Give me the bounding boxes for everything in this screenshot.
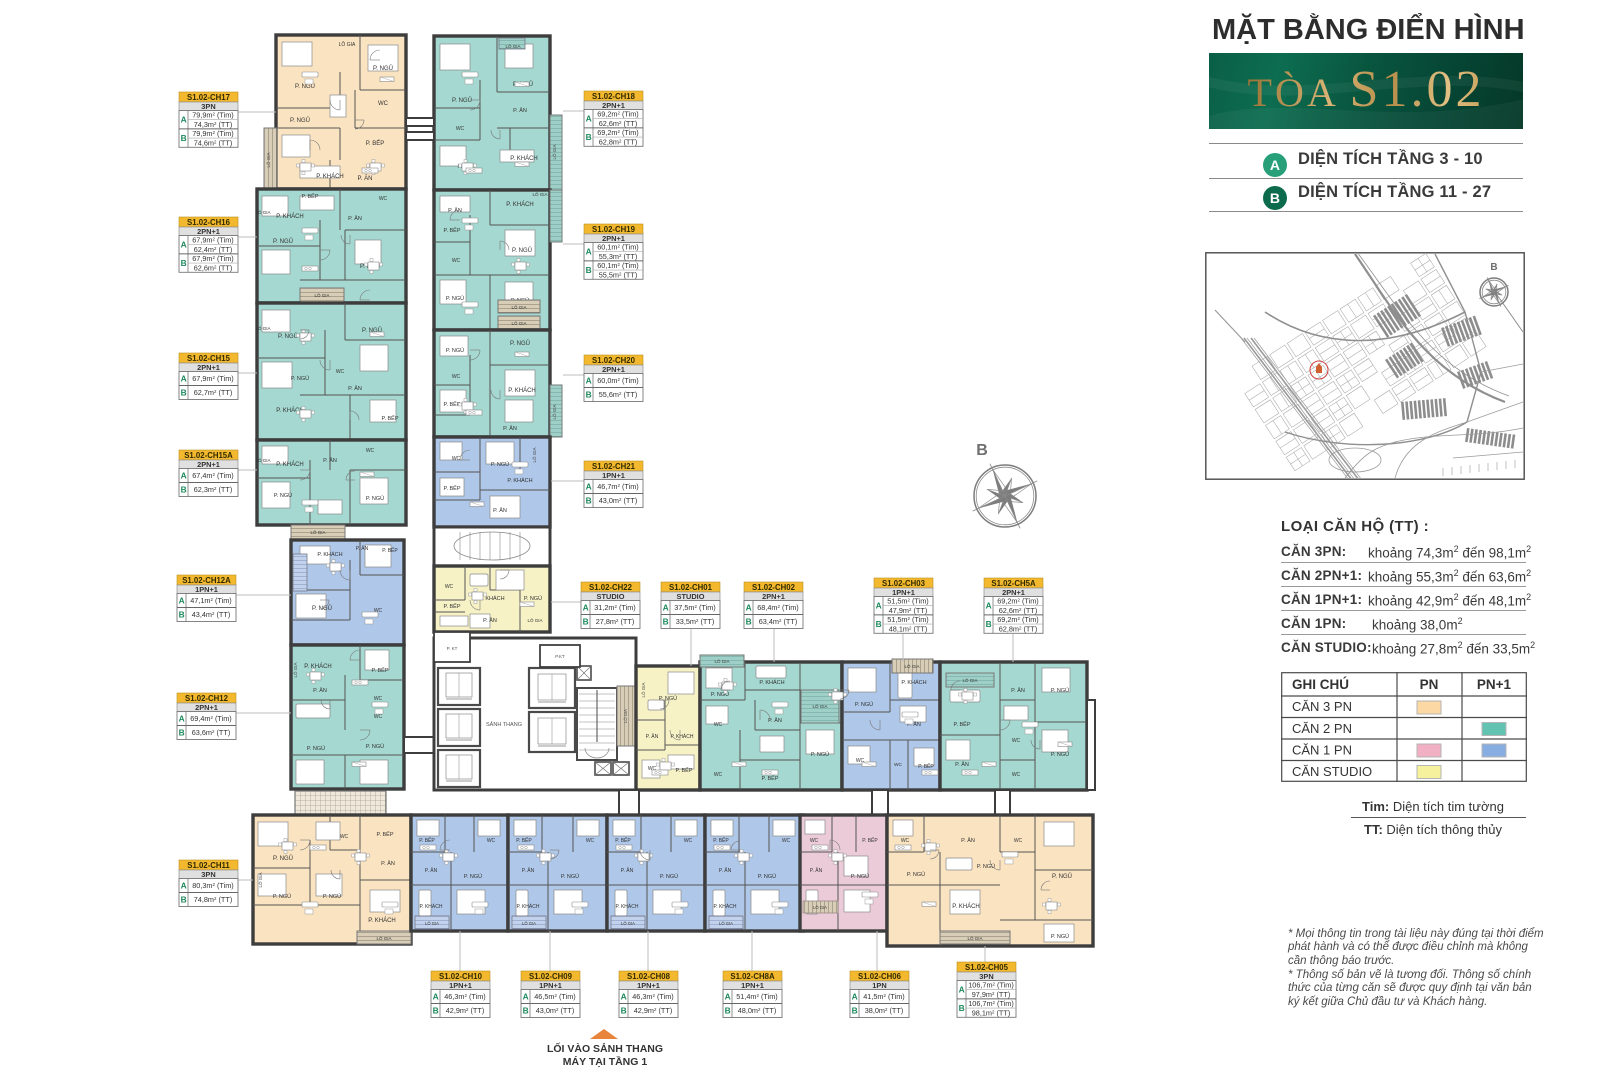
- svg-text:A: A: [181, 471, 187, 481]
- svg-text:P. NGỦ: P. NGỦ: [561, 873, 579, 880]
- svg-text:S1.02-CH22: S1.02-CH22: [589, 583, 633, 592]
- svg-text:P. ĂN: P. ĂN: [719, 867, 732, 874]
- svg-text:P. ĂN: P. ĂN: [358, 175, 373, 182]
- svg-text:62,6m2 (TT): 62,6m2 (TT): [999, 606, 1038, 615]
- svg-text:62,8m2 (TT): 62,8m2 (TT): [999, 624, 1038, 633]
- svg-text:S1.02-CH06: S1.02-CH06: [858, 972, 902, 981]
- svg-text:P. NGỦ: P. NGỦ: [290, 117, 310, 124]
- svg-text:P. KHÁCH: P. KHÁCH: [317, 551, 342, 558]
- svg-text:P. BẾP: P. BẾP: [953, 721, 970, 728]
- svg-text:P. BẾP: P. BẾP: [615, 837, 631, 844]
- svg-text:74,8m2 (TT): 74,8m2 (TT): [194, 895, 233, 904]
- svg-text:97,9m2 (TT): 97,9m2 (TT): [972, 990, 1011, 999]
- svg-text:LÔ GIA: LÔ GIA: [714, 658, 729, 664]
- svg-text:S1.02-CH10: S1.02-CH10: [439, 972, 483, 981]
- svg-text:P. NGỦ: P. NGỦ: [307, 745, 325, 752]
- svg-text:P. NGỦ: P. NGỦ: [446, 295, 464, 302]
- svg-text:LÔ GIA: LÔ GIA: [310, 529, 325, 535]
- svg-text:43,0m2 (TT): 43,0m2 (TT): [599, 496, 638, 505]
- svg-text:B: B: [181, 895, 187, 905]
- svg-text:WC: WC: [782, 838, 791, 844]
- svg-text:P. ĂN: P. ĂN: [961, 837, 975, 844]
- svg-text:S1.02-CH15A: S1.02-CH15A: [184, 451, 233, 460]
- svg-text:P. BẾP: P. BẾP: [761, 775, 778, 782]
- svg-text:1PN+1: 1PN+1: [637, 981, 660, 990]
- svg-text:P. BẾP: P. BẾP: [381, 415, 398, 422]
- svg-text:P. NGỦ: P. NGỦ: [373, 65, 393, 72]
- svg-text:P. KHÁCH: P. KHÁCH: [510, 155, 538, 162]
- svg-text:LÔ GIA: LÔ GIA: [719, 921, 733, 926]
- svg-text:P. ĂN: P. ĂN: [356, 545, 369, 552]
- svg-text:B: B: [852, 1006, 858, 1016]
- svg-text:A: A: [179, 714, 185, 724]
- svg-text:A: A: [181, 115, 187, 125]
- svg-text:P. ĂN: P. ĂN: [503, 425, 517, 432]
- svg-text:P. ĂN: P. ĂN: [483, 617, 497, 624]
- svg-text:P. NGỦ: P. NGỦ: [659, 695, 677, 702]
- svg-text:P. NGỦ: P. NGỦ: [273, 238, 293, 245]
- svg-text:B: B: [181, 133, 187, 143]
- svg-text:43,4m2 (TT): 43,4m2 (TT): [192, 610, 231, 619]
- svg-text:P. BẾP: P. BẾP: [443, 401, 460, 408]
- svg-text:2PN+1: 2PN+1: [195, 703, 218, 712]
- svg-text:P. BẾP: P. BẾP: [366, 140, 385, 147]
- svg-text:S1.02-CH02: S1.02-CH02: [752, 583, 796, 592]
- svg-text:WC: WC: [714, 722, 723, 728]
- svg-text:A: A: [179, 596, 185, 606]
- svg-text:B: B: [181, 485, 187, 495]
- svg-text:LÔ GIA: LÔ GIA: [265, 152, 271, 167]
- svg-text:WC: WC: [586, 838, 595, 844]
- svg-text:PN: PN: [1420, 677, 1439, 692]
- svg-text:A: A: [586, 114, 592, 124]
- svg-text:62,6m2 (TT): 62,6m2 (TT): [194, 263, 233, 272]
- svg-text:LÔ GIA: LÔ GIA: [967, 935, 982, 941]
- svg-text:P. NGỦ: P. NGỦ: [855, 701, 873, 708]
- svg-text:WC: WC: [452, 456, 461, 462]
- svg-text:P. KHÁCH: P. KHÁCH: [714, 903, 737, 910]
- svg-text:P. ĂN: P. ĂN: [513, 107, 527, 114]
- svg-text:P. ĂN: P. ĂN: [1011, 687, 1025, 694]
- svg-text:3PN: 3PN: [979, 972, 993, 981]
- svg-text:P. KHÁCH: P. KHÁCH: [952, 903, 980, 910]
- svg-text:P. NGỦ: P. NGỦ: [1051, 687, 1069, 694]
- svg-text:WC: WC: [1012, 772, 1021, 778]
- svg-text:P. NGỦ: P. NGỦ: [758, 873, 776, 880]
- svg-text:P. NGỦ: P. NGỦ: [452, 97, 472, 104]
- svg-text:P. NGỦ: P. NGỦ: [446, 347, 464, 354]
- svg-text:B: B: [959, 1003, 965, 1013]
- svg-text:LÔ GIA: LÔ GIA: [314, 292, 329, 298]
- svg-text:WC: WC: [901, 838, 910, 844]
- svg-text:P. BẾP: P. BẾP: [516, 837, 532, 844]
- svg-text:P. ĂN: P. ĂN: [381, 860, 395, 867]
- svg-text:B: B: [725, 1006, 731, 1016]
- svg-text:47,9m2 (TT): 47,9m2 (TT): [889, 606, 928, 615]
- svg-text:A: A: [746, 603, 752, 613]
- svg-text:74,6m2 (TT): 74,6m2 (TT): [194, 138, 233, 147]
- svg-text:P. ĂN: P. ĂN: [448, 207, 462, 214]
- svg-text:B: B: [586, 496, 592, 506]
- svg-text:LÔ GIA: LÔ GIA: [640, 682, 646, 697]
- svg-text:P. ĂN: P. ĂN: [493, 507, 507, 514]
- svg-text:P. NGỦ: P. NGỦ: [366, 743, 384, 750]
- svg-text:S1.02-CH18: S1.02-CH18: [592, 92, 636, 101]
- svg-text:LÔ GIA: LÔ GIA: [904, 663, 919, 669]
- svg-text:LÔ GIA: LÔ GIA: [511, 320, 526, 326]
- svg-text:STUDIO: STUDIO: [597, 592, 625, 601]
- svg-text:P. NGỦ: P. NGỦ: [278, 333, 298, 340]
- svg-text:WC: WC: [1012, 738, 1021, 744]
- svg-text:3PN: 3PN: [201, 102, 215, 111]
- svg-text:STUDIO: STUDIO: [677, 592, 705, 601]
- svg-text:P. KHÁCH: P. KHÁCH: [507, 477, 532, 484]
- svg-text:LÔ GIA: LÔ GIA: [551, 144, 557, 159]
- svg-text:A: A: [583, 603, 589, 613]
- svg-text:P. KHÁCH: P. KHÁCH: [508, 387, 536, 394]
- svg-text:A: A: [876, 601, 882, 611]
- svg-text:WC: WC: [336, 369, 345, 375]
- svg-text:B: B: [179, 728, 185, 738]
- svg-text:1PN: 1PN: [872, 981, 886, 990]
- svg-text:WC: WC: [445, 584, 454, 590]
- svg-text:A: A: [181, 240, 187, 250]
- svg-text:P. KHÁCH: P. KHÁCH: [759, 679, 784, 686]
- svg-text:P.KT: P.KT: [555, 654, 565, 659]
- svg-text:2PN+1: 2PN+1: [197, 460, 220, 469]
- svg-text:LÔ GIA: LÔ GIA: [255, 209, 270, 215]
- svg-text:62,3m2 (TT): 62,3m2 (TT): [194, 485, 233, 494]
- svg-text:P. NGỦ: P. NGỦ: [366, 495, 384, 502]
- svg-text:WC: WC: [684, 838, 693, 844]
- svg-text:A: A: [986, 601, 992, 611]
- svg-text:1PN+1: 1PN+1: [741, 981, 764, 990]
- svg-text:P. NGỦ: P. NGỦ: [273, 855, 293, 862]
- svg-text:A: A: [586, 376, 592, 386]
- svg-text:A: A: [181, 881, 187, 891]
- svg-text:B: B: [1490, 262, 1497, 273]
- svg-text:LÔ GIA: LÔ GIA: [376, 935, 391, 941]
- svg-text:LÔ GIA: LÔ GIA: [425, 921, 439, 926]
- svg-text:S1.02-CH5A: S1.02-CH5A: [991, 579, 1036, 588]
- svg-text:P. BẾP: P. BẾP: [918, 763, 934, 770]
- svg-text:P. NGỦ: P. NGỦ: [1051, 933, 1069, 940]
- svg-text:WC: WC: [340, 834, 349, 840]
- svg-text:106,7m2 (Tim): 106,7m2 (Tim): [968, 981, 1014, 990]
- svg-text:P. NGỦ: P. NGỦ: [811, 751, 829, 758]
- svg-text:P. BẾP: P. BẾP: [443, 603, 460, 610]
- svg-text:74,3m2 (TT): 74,3m2 (TT): [194, 120, 233, 129]
- svg-text:P. NGỦ: P. NGỦ: [464, 873, 482, 880]
- svg-text:2PN+1: 2PN+1: [197, 227, 220, 236]
- svg-text:42,9m2 (TT): 42,9m2 (TT): [634, 1006, 673, 1015]
- svg-text:P. NGỦ: P. NGỦ: [660, 873, 678, 880]
- svg-text:P. KHÁCH: P. KHÁCH: [616, 903, 639, 910]
- svg-text:S1.02-CH09: S1.02-CH09: [529, 972, 573, 981]
- svg-text:P. BẾP: P. BẾP: [301, 193, 318, 200]
- svg-text:S1.02-CH12A: S1.02-CH12A: [182, 576, 231, 585]
- svg-text:P. KHÁCH: P. KHÁCH: [901, 679, 926, 686]
- svg-text:S1.02-CH19: S1.02-CH19: [592, 225, 636, 234]
- svg-text:B: B: [179, 610, 185, 620]
- svg-text:P. BẾP: P. BẾP: [371, 667, 388, 674]
- svg-text:A: A: [852, 992, 858, 1002]
- svg-text:2PN+1: 2PN+1: [602, 101, 625, 110]
- svg-text:S1.02-CH16: S1.02-CH16: [187, 218, 231, 227]
- svg-text:PN+1: PN+1: [1477, 677, 1512, 692]
- svg-text:2PN+1: 2PN+1: [762, 592, 785, 601]
- svg-text:LÔ GIA: LÔ GIA: [292, 662, 298, 677]
- svg-text:LÔ GIA: LÔ GIA: [623, 709, 628, 723]
- svg-text:CĂN 1 PN: CĂN 1 PN: [1292, 743, 1352, 758]
- svg-text:P. ĂN: P. ĂN: [348, 215, 362, 222]
- svg-text:55,5m2 (TT): 55,5m2 (TT): [599, 270, 638, 279]
- svg-text:P. BẾP: P. BẾP: [443, 485, 460, 492]
- svg-text:LÔ GIA: LÔ GIA: [255, 457, 270, 463]
- svg-text:P. BẾP: P. BẾP: [713, 837, 729, 844]
- svg-text:S1.02-CH20: S1.02-CH20: [592, 356, 636, 365]
- svg-text:WC: WC: [810, 838, 819, 844]
- svg-text:A: A: [621, 992, 627, 1002]
- svg-text:S1.02-CH01: S1.02-CH01: [669, 583, 713, 592]
- svg-text:B: B: [523, 1006, 529, 1016]
- svg-text:P. ĂN: P. ĂN: [768, 717, 782, 724]
- svg-text:LÔ GIA: LÔ GIA: [551, 404, 557, 419]
- svg-text:P. NGỦ: P. NGỦ: [273, 893, 291, 900]
- svg-text:P. ĂN: P. ĂN: [810, 867, 823, 874]
- svg-text:LÔ GIA: LÔ GIA: [812, 703, 827, 709]
- svg-text:WC: WC: [452, 258, 461, 264]
- svg-text:P. KHÁCH: P. KHÁCH: [276, 213, 304, 220]
- svg-text:48,0m2 (TT): 48,0m2 (TT): [738, 1006, 777, 1015]
- svg-text:P. ĂN: P. ĂN: [955, 761, 969, 768]
- svg-text:CĂN 3 PN: CĂN 3 PN: [1292, 699, 1352, 714]
- svg-text:WC: WC: [366, 448, 375, 454]
- svg-text:1PN+1: 1PN+1: [892, 588, 915, 597]
- svg-text:P. ĂN: P. ĂN: [348, 385, 362, 392]
- svg-text:2PN+1: 2PN+1: [602, 234, 625, 243]
- svg-text:P. NGỦ: P. NGỦ: [291, 375, 309, 382]
- svg-text:1PN+1: 1PN+1: [449, 981, 472, 990]
- svg-text:P. BẾP: P. BẾP: [675, 767, 692, 774]
- svg-text:B: B: [586, 132, 592, 142]
- svg-text:WC: WC: [452, 374, 461, 380]
- svg-text:LÔ GIA: LÔ GIA: [255, 325, 270, 331]
- svg-text:B: B: [433, 1006, 439, 1016]
- svg-text:62,7m2 (TT): 62,7m2 (TT): [194, 388, 233, 397]
- svg-text:55,6m2 (TT): 55,6m2 (TT): [599, 390, 638, 399]
- svg-text:2PN+1: 2PN+1: [197, 363, 220, 372]
- svg-text:WC: WC: [374, 696, 383, 702]
- svg-text:42,9m2 (TT): 42,9m2 (TT): [446, 1006, 485, 1015]
- svg-text:P. KHÁCH: P. KHÁCH: [316, 173, 344, 180]
- svg-text:P. NGỦ: P. NGỦ: [851, 873, 869, 880]
- svg-text:P. NGỦ: P. NGỦ: [1051, 751, 1069, 758]
- svg-text:S1.02-CH17: S1.02-CH17: [187, 93, 230, 102]
- svg-text:P. BẾP: P. BẾP: [443, 227, 460, 234]
- svg-text:S1.02-CH11: S1.02-CH11: [187, 861, 230, 870]
- svg-text:B: B: [976, 442, 988, 459]
- svg-text:LÔ GIA: LÔ GIA: [505, 43, 520, 49]
- svg-text:B: B: [986, 619, 992, 629]
- svg-text:WC: WC: [379, 196, 388, 202]
- svg-text:LÔ GIA: LÔ GIA: [339, 41, 356, 48]
- svg-text:27,8m2 (TT): 27,8m2 (TT): [596, 617, 635, 626]
- svg-text:S1.02-CH05: S1.02-CH05: [965, 963, 1009, 972]
- svg-text:63,6m2 (TT): 63,6m2 (TT): [192, 728, 231, 737]
- svg-text:SẢNH THANG: SẢNH THANG: [486, 721, 522, 728]
- svg-text:B: B: [181, 388, 187, 398]
- svg-text:P. ĂN: P. ĂN: [646, 733, 659, 740]
- svg-text:LÔ GIA: LÔ GIA: [527, 617, 542, 623]
- svg-text:LÔ GIA: LÔ GIA: [522, 921, 536, 926]
- svg-text:B: B: [663, 617, 669, 627]
- svg-text:P. BẾP: P. BẾP: [862, 837, 878, 844]
- svg-text:GHI CHÚ: GHI CHÚ: [1292, 677, 1349, 692]
- svg-text:P. NGỦ: P. NGỦ: [524, 595, 542, 602]
- svg-text:P. BẾP: P. BẾP: [382, 547, 398, 554]
- svg-text:P. NGỦ: P. NGỦ: [510, 340, 530, 347]
- svg-text:48,1m2 (TT): 48,1m2 (TT): [889, 624, 928, 633]
- svg-text:62,8m2 (TT): 62,8m2 (TT): [599, 137, 638, 146]
- svg-text:CĂN 2 PN: CĂN 2 PN: [1292, 721, 1352, 736]
- svg-text:106,7m2 (Tim): 106,7m2 (Tim): [968, 999, 1014, 1008]
- svg-text:33,5m2 (TT): 33,5m2 (TT): [676, 617, 715, 626]
- svg-text:P. ĂN: P. ĂN: [323, 457, 337, 464]
- svg-text:P. ĂN: P. ĂN: [522, 867, 535, 874]
- svg-text:LÔ GIA: LÔ GIA: [532, 191, 547, 197]
- svg-text:P. NGỦ: P. NGỦ: [1052, 873, 1072, 880]
- svg-text:WC: WC: [378, 101, 389, 107]
- svg-text:S1.02-CH8A: S1.02-CH8A: [730, 972, 775, 981]
- svg-text:LÔ GIA: LÔ GIA: [621, 921, 635, 926]
- svg-text:P. NGỦ: P. NGỦ: [907, 871, 925, 878]
- svg-text:P. KHÁCH: P. KHÁCH: [304, 663, 332, 670]
- svg-text:1PN+1: 1PN+1: [195, 585, 218, 594]
- svg-text:P. KHÁCH: P. KHÁCH: [420, 903, 443, 910]
- svg-text:S1.02-CH21: S1.02-CH21: [592, 462, 636, 471]
- svg-text:38,0m2 (TT): 38,0m2 (TT): [865, 1006, 904, 1015]
- svg-text:LÔ GIA: LÔ GIA: [813, 905, 827, 910]
- svg-text:98,1m2 (TT): 98,1m2 (TT): [972, 1008, 1011, 1017]
- svg-text:P. NGỦ: P. NGỦ: [512, 247, 532, 254]
- svg-text:A: A: [586, 482, 592, 492]
- svg-text:P. ĂN: P. ĂN: [621, 867, 634, 874]
- svg-text:P. BẾP: P. BẾP: [376, 831, 393, 838]
- svg-text:B: B: [621, 1006, 627, 1016]
- svg-text:P. KHÁCH: P. KHÁCH: [671, 733, 694, 740]
- svg-text:1PN+1: 1PN+1: [602, 471, 625, 480]
- svg-text:3PN: 3PN: [201, 870, 215, 879]
- svg-text:A: A: [959, 985, 965, 995]
- svg-text:55,3m2 (TT): 55,3m2 (TT): [599, 252, 638, 261]
- svg-text:2PN+1: 2PN+1: [602, 365, 625, 374]
- svg-text:S1.02-CH08: S1.02-CH08: [627, 972, 671, 981]
- svg-text:S1.02-CH12: S1.02-CH12: [185, 694, 229, 703]
- svg-text:WC: WC: [374, 714, 383, 720]
- svg-text:P. ĂN: P. ĂN: [425, 867, 438, 874]
- svg-text:B: B: [586, 390, 592, 400]
- svg-text:LÔ GIA: LÔ GIA: [257, 872, 263, 887]
- svg-text:A: A: [725, 992, 731, 1002]
- svg-text:P. KHÁCH: P. KHÁCH: [368, 917, 396, 924]
- svg-text:A: A: [433, 992, 439, 1002]
- svg-text:A: A: [181, 374, 187, 384]
- svg-text:TÒA S1.02: TÒA S1.02: [1248, 61, 1485, 118]
- svg-text:B: B: [586, 265, 592, 275]
- svg-text:62,4m2 (TT): 62,4m2 (TT): [194, 245, 233, 254]
- svg-text:CĂN STUDIO: CĂN STUDIO: [1292, 764, 1372, 779]
- svg-text:WC: WC: [456, 126, 465, 132]
- svg-text:LÔ GIA: LÔ GIA: [962, 677, 977, 683]
- svg-text:P. ĂN: P. ĂN: [313, 687, 327, 694]
- svg-text:A: A: [523, 992, 529, 1002]
- svg-text:2PN+1: 2PN+1: [1002, 588, 1025, 597]
- svg-text:S1.02-CH03: S1.02-CH03: [882, 579, 926, 588]
- svg-text:P. NGỦ: P. NGỦ: [323, 893, 341, 900]
- svg-text:P. KHÁCH: P. KHÁCH: [276, 461, 304, 468]
- svg-text:62,6m2 (TT): 62,6m2 (TT): [599, 119, 638, 128]
- svg-text:WC: WC: [487, 838, 496, 844]
- svg-text:S1.02-CH15: S1.02-CH15: [187, 354, 231, 363]
- svg-text:A: A: [586, 247, 592, 257]
- svg-text:63,4m2 (TT): 63,4m2 (TT): [759, 617, 798, 626]
- svg-text:WC: WC: [714, 772, 723, 778]
- svg-text:P. KHÁCH: P. KHÁCH: [506, 201, 534, 208]
- svg-text:1PN+1: 1PN+1: [539, 981, 562, 990]
- svg-text:WC: WC: [894, 762, 903, 768]
- svg-text:B: B: [746, 617, 752, 627]
- svg-text:P. BẾP: P. BẾP: [419, 837, 435, 844]
- svg-text:WC: WC: [1014, 838, 1023, 844]
- svg-text:P. KT: P. KT: [447, 646, 458, 651]
- svg-text:P. NGỦ: P. NGỦ: [274, 492, 292, 499]
- svg-text:P. NGỦ: P. NGỦ: [491, 461, 509, 468]
- svg-text:P. KHÁCH: P. KHÁCH: [517, 903, 540, 910]
- svg-text:B: B: [181, 258, 187, 268]
- svg-text:43,0m2 (TT): 43,0m2 (TT): [536, 1006, 575, 1015]
- svg-text:A: A: [663, 603, 669, 613]
- svg-text:B: B: [583, 617, 589, 627]
- svg-text:B: B: [876, 619, 882, 629]
- svg-text:LÔ GIA: LÔ GIA: [511, 304, 526, 310]
- svg-text:LÔ GIA: LÔ GIA: [531, 447, 537, 462]
